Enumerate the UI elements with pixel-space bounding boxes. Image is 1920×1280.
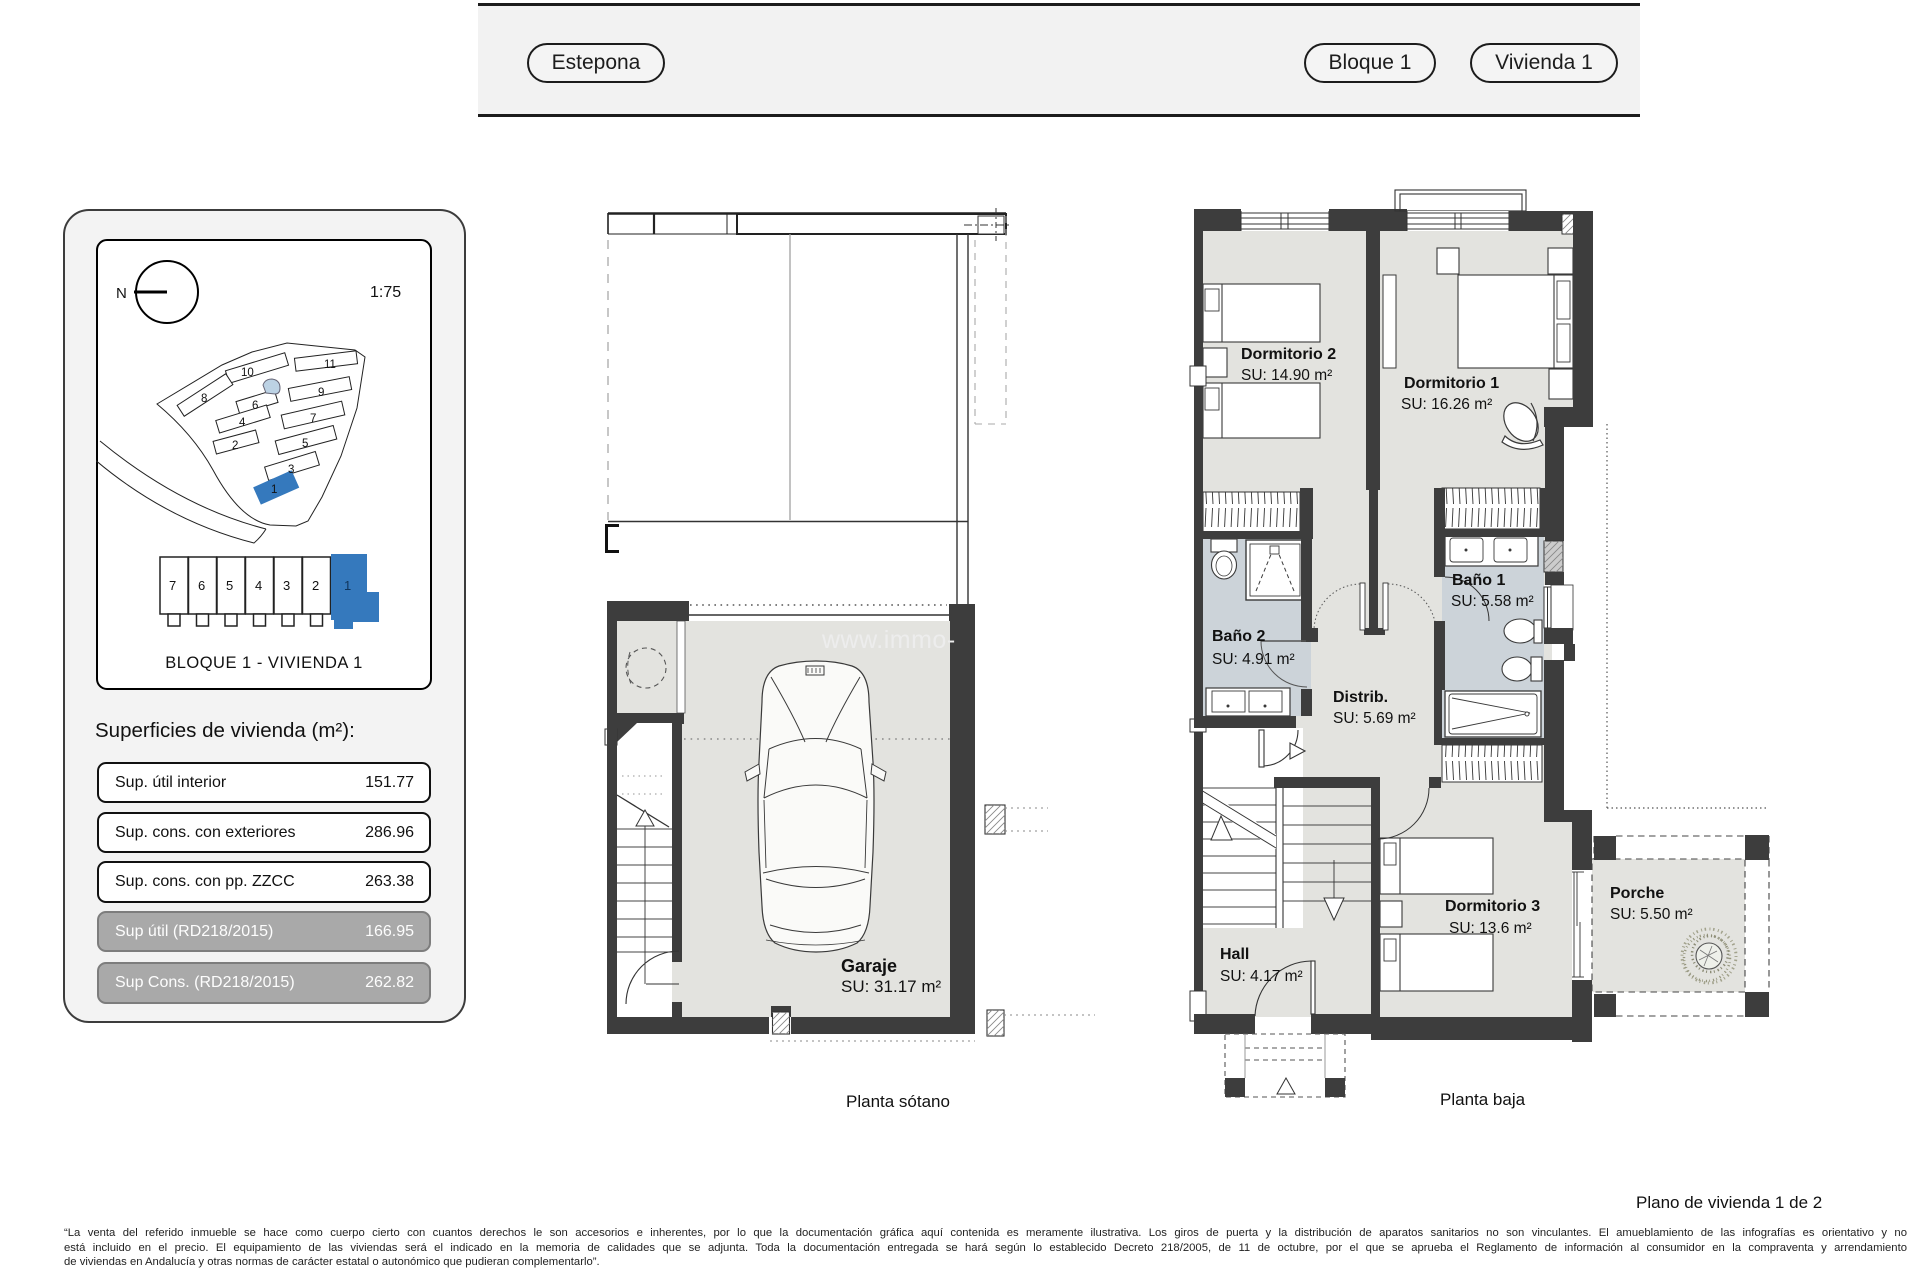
svg-text:1:75: 1:75 bbox=[370, 284, 401, 301]
svg-text:Dormitorio 3: Dormitorio 3 bbox=[1445, 898, 1540, 915]
svg-text:Distrib.: Distrib. bbox=[1333, 689, 1388, 706]
svg-text:SU: 14.90 m²: SU: 14.90 m² bbox=[1241, 367, 1332, 384]
svg-text:SU: 5.58 m²: SU: 5.58 m² bbox=[1451, 593, 1534, 610]
svg-text:Dormitorio 1: Dormitorio 1 bbox=[1404, 375, 1499, 392]
svg-text:5: 5 bbox=[302, 438, 308, 450]
svg-text:Dormitorio 2: Dormitorio 2 bbox=[1241, 346, 1336, 363]
svg-text:SU: 4.17 m²: SU: 4.17 m² bbox=[1220, 968, 1303, 985]
svg-text:Porche: Porche bbox=[1610, 885, 1664, 902]
svg-text:5: 5 bbox=[226, 578, 233, 593]
svg-text:3: 3 bbox=[288, 464, 294, 476]
svg-text:SU: 4.91 m²: SU: 4.91 m² bbox=[1212, 651, 1295, 668]
svg-text:SU: 5.50 m²: SU: 5.50 m² bbox=[1610, 906, 1693, 923]
svg-text:8: 8 bbox=[201, 393, 207, 405]
svg-text:4: 4 bbox=[239, 417, 246, 429]
svg-text:7: 7 bbox=[310, 413, 316, 425]
svg-text:Baño 2: Baño 2 bbox=[1212, 628, 1265, 645]
svg-text:SU: 31.17 m²: SU: 31.17 m² bbox=[841, 977, 941, 996]
svg-text:N: N bbox=[116, 285, 127, 302]
svg-text:Garaje: Garaje bbox=[841, 956, 897, 976]
svg-text:Hall: Hall bbox=[1220, 946, 1249, 963]
svg-text:10: 10 bbox=[241, 367, 254, 379]
svg-text:SU: 13.6 m²: SU: 13.6 m² bbox=[1449, 920, 1532, 937]
svg-text:BLOQUE 1 - VIVIENDA 1: BLOQUE 1 - VIVIENDA 1 bbox=[165, 654, 363, 672]
svg-text:6: 6 bbox=[198, 578, 205, 593]
svg-text:1: 1 bbox=[271, 484, 277, 496]
svg-text:4: 4 bbox=[255, 578, 262, 593]
svg-text:SU: 5.69 m²: SU: 5.69 m² bbox=[1333, 710, 1416, 727]
svg-text:7: 7 bbox=[169, 578, 176, 593]
svg-text:2: 2 bbox=[232, 440, 238, 452]
svg-text:Baño 1: Baño 1 bbox=[1452, 572, 1505, 589]
svg-text:9: 9 bbox=[318, 387, 324, 399]
svg-text:3: 3 bbox=[283, 578, 290, 593]
svg-text:1: 1 bbox=[344, 578, 351, 593]
svg-text:SU: 16.26 m²: SU: 16.26 m² bbox=[1401, 396, 1492, 413]
svg-text:6: 6 bbox=[252, 400, 258, 412]
svg-text:11: 11 bbox=[324, 359, 336, 371]
svg-text:2: 2 bbox=[312, 578, 319, 593]
